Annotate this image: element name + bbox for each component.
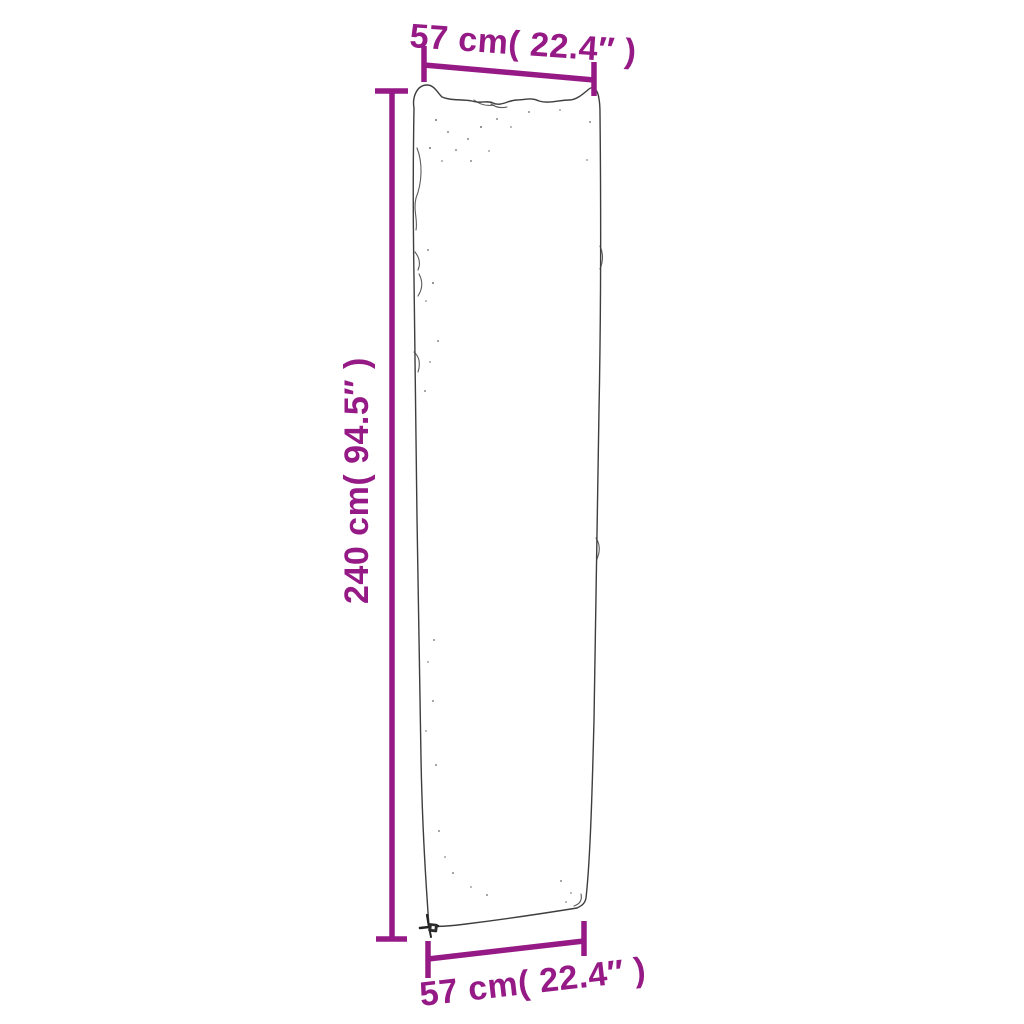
bottom-width-label: 57 cm( 22.4″ ) <box>418 950 648 1013</box>
dimension-diagram: 57 cm( 22.4″ ) 240 cm( 94.5″ ) 57 cm( 22… <box>0 0 1024 1024</box>
dimension-line <box>424 65 594 80</box>
diagram-page: 57 cm( 22.4″ ) 240 cm( 94.5″ ) 57 cm( 22… <box>0 0 1024 1024</box>
cover-drawing <box>413 85 602 937</box>
cover-outline <box>413 85 600 926</box>
height-label: 240 cm( 94.5″ ) <box>338 357 376 604</box>
top-width-dimension: 57 cm( 22.4″ ) <box>408 17 638 96</box>
top-width-label: 57 cm( 22.4″ ) <box>408 17 638 71</box>
bottom-width-dimension: 57 cm( 22.4″ ) <box>418 921 648 1014</box>
height-dimension: 240 cm( 94.5″ ) <box>338 89 408 941</box>
dimension-line <box>428 941 584 959</box>
